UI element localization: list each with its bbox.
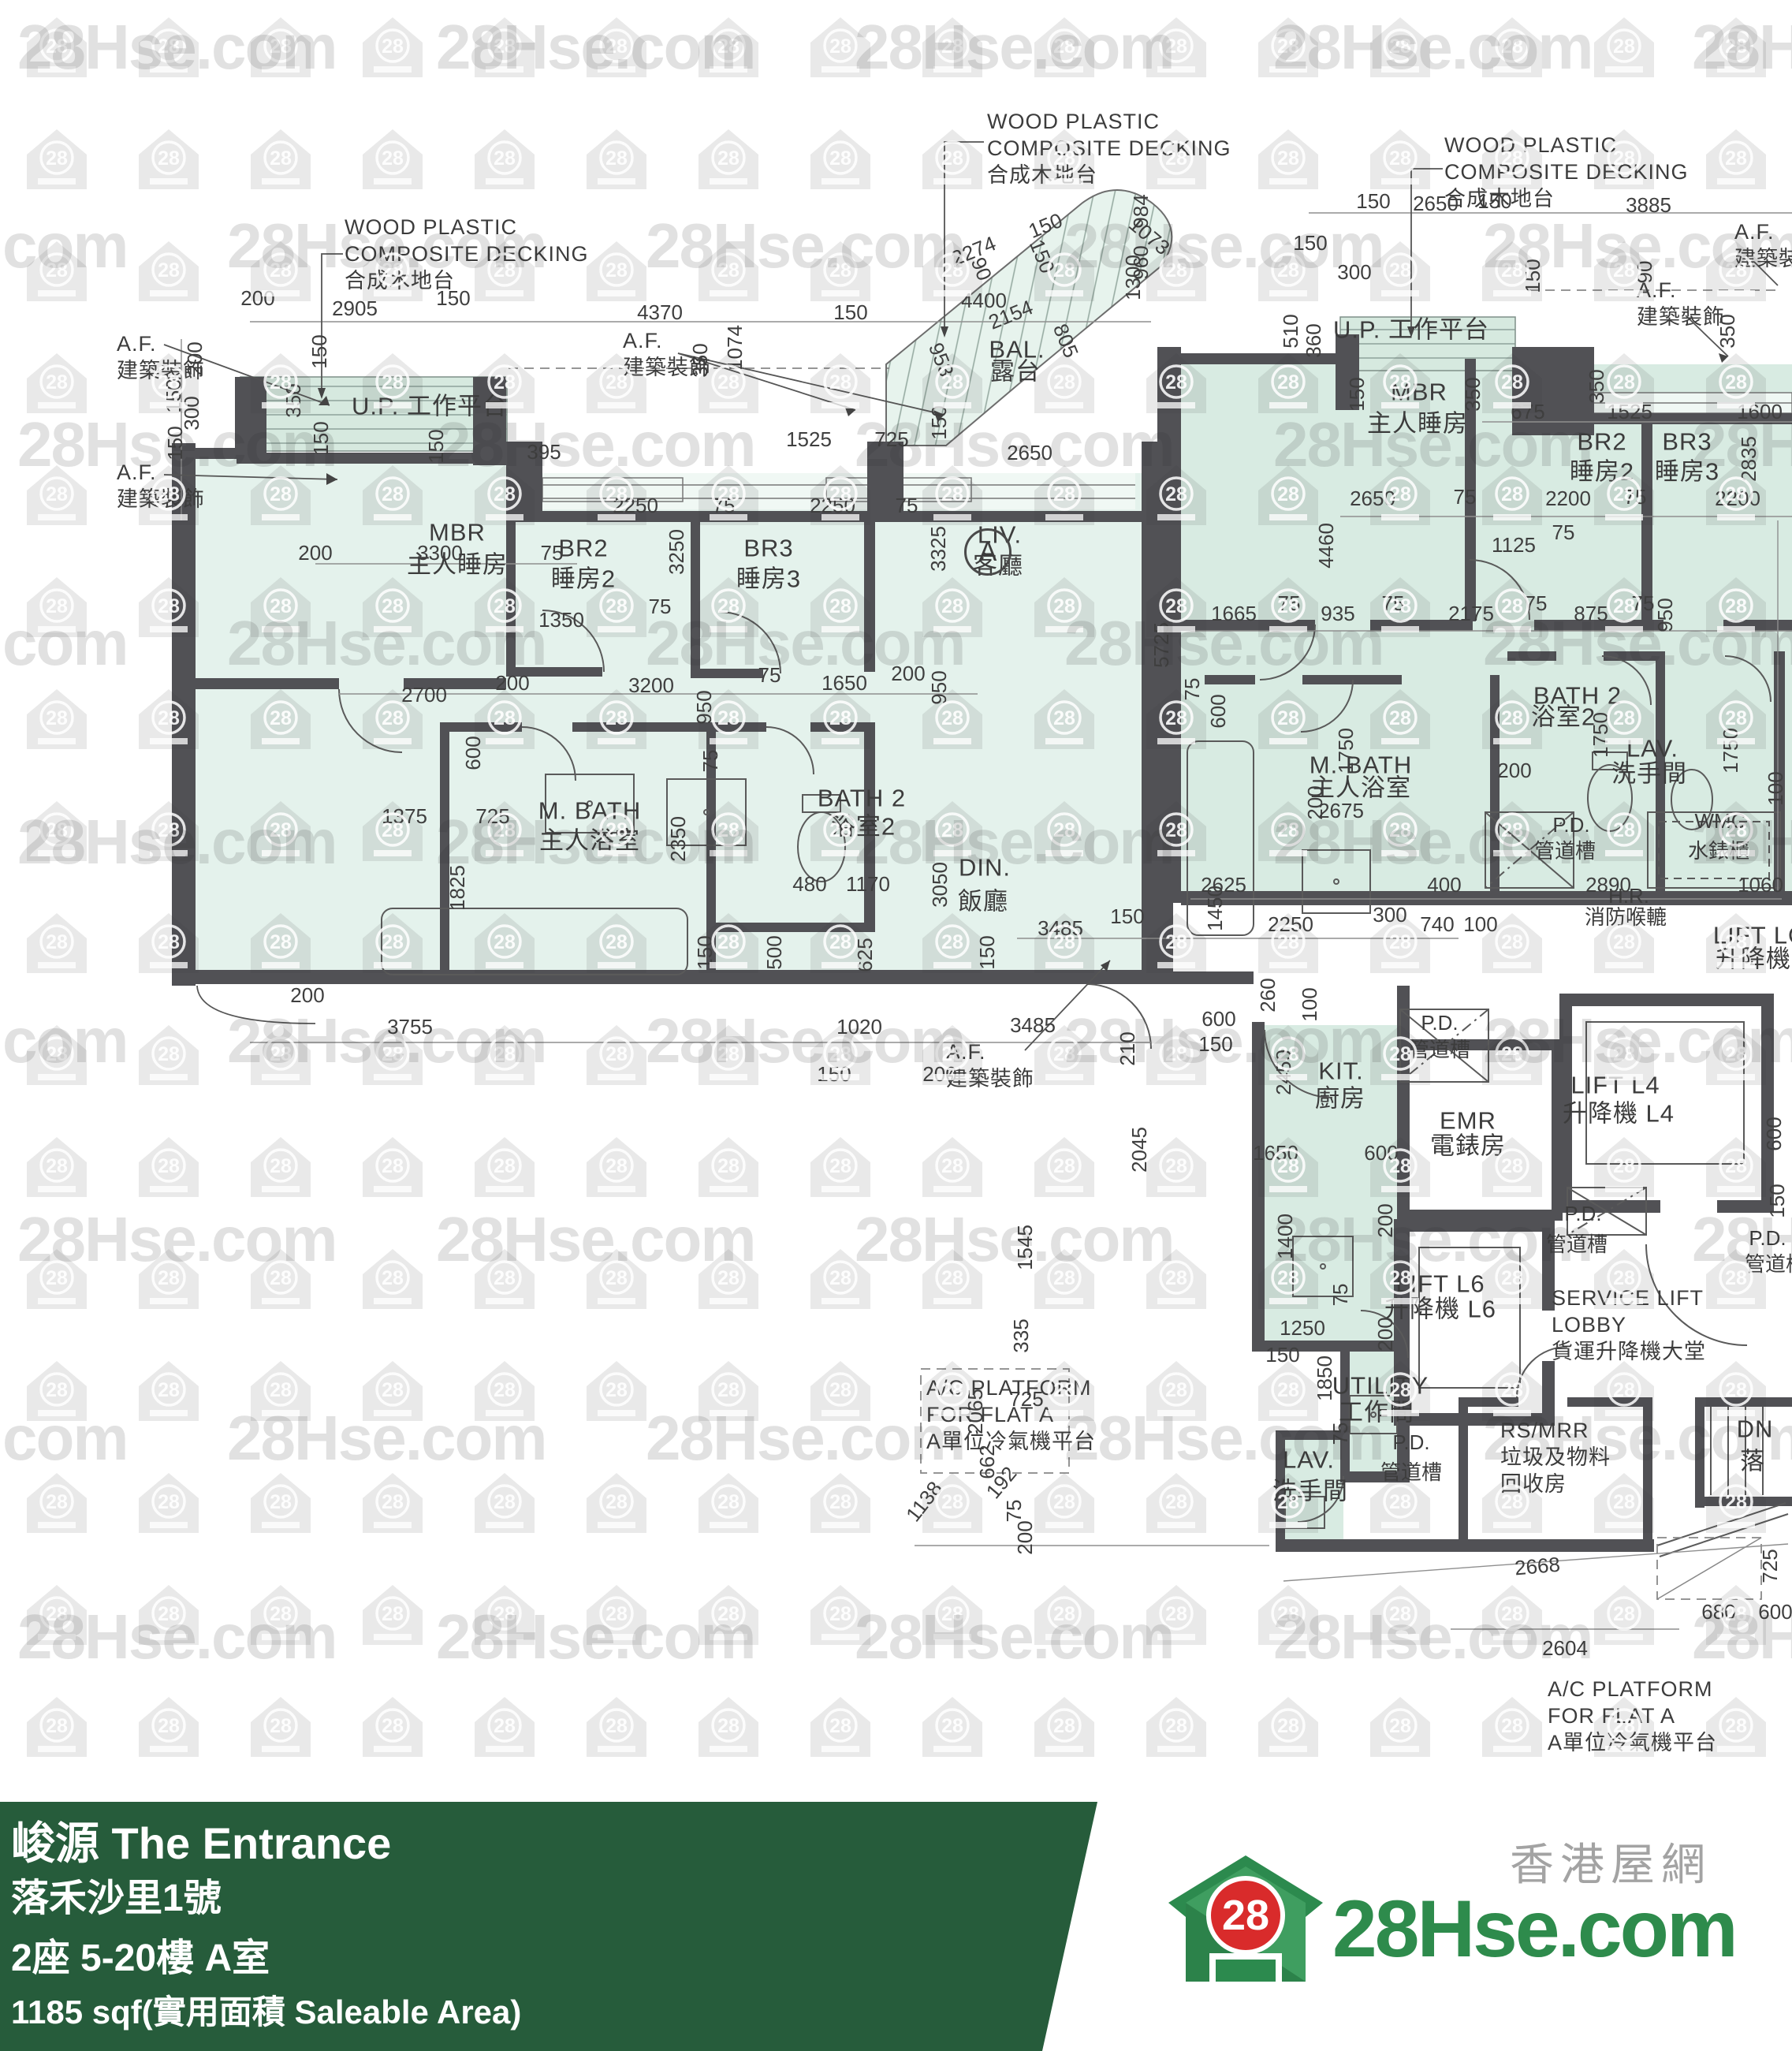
annotation-block: WOOD PLASTICCOMPOSITE DECKING合成木地台 [1444, 132, 1689, 212]
dim-label: 3250 [666, 529, 687, 575]
dim-label: 150 [695, 935, 715, 969]
annotation-block: SERVICE LIFTLOBBY貨運升降機大堂 [1552, 1285, 1706, 1365]
dim-label: 3200 [628, 675, 674, 695]
dim-label: 360 [1303, 323, 1324, 357]
dim-label: 150 [1522, 259, 1543, 293]
dim-label: 625 [855, 938, 875, 971]
annotation-block: A.F.建築裝飾 [117, 460, 205, 513]
room-label: 管道槽 [1409, 1039, 1470, 1060]
dim-label: 1375 [382, 806, 427, 826]
room-label: 飯廳 [958, 889, 1008, 914]
room-label: 浴室2 [831, 815, 896, 839]
dim-label: 300 [181, 396, 202, 430]
dim-label: 400 [1427, 874, 1461, 895]
dim-label: 935 [1321, 603, 1354, 624]
dim-label: 200 [1497, 760, 1531, 781]
room-label: 主人浴室 [539, 829, 640, 853]
brand-chinese: 香港屋網 [1510, 1843, 1712, 1887]
dim-label: 75 [1382, 593, 1405, 613]
dim-label: 4460 [1316, 523, 1336, 569]
dim-label: 300 [1373, 904, 1406, 925]
annotation-block: RS/MRR垃圾及物料回收房 [1500, 1418, 1611, 1497]
dim-label: 3050 [930, 862, 950, 908]
dim-label: 75 [896, 495, 918, 516]
dim-label: 2200 [1545, 488, 1591, 509]
plan-labels: U.P. 工作平台MBR主人睡房BR2睡房2BR3睡房3LIV.客廳DIN.飯廳… [0, 0, 1792, 1833]
room-label: P.D. [1421, 1012, 1458, 1033]
room-label: 升降機 L4 [1563, 1102, 1675, 1126]
dim-label: 200 [1015, 1520, 1035, 1554]
dim-label: 725 [874, 429, 908, 449]
dim-label: 2700 [401, 684, 447, 705]
dim-label: 1825 [447, 865, 468, 911]
room-label: MBR [1391, 380, 1447, 405]
dim-label: 200 [1375, 1317, 1395, 1351]
dim-label: 200 [891, 663, 925, 684]
room-label: 電錶房 [1430, 1134, 1506, 1158]
footer: 峻源 The Entrance 落禾沙里1號 2座 5-20樓 A室 1185 … [0, 1802, 1792, 2051]
room-label: P.D. [1552, 815, 1589, 835]
room-label: BR2 [558, 536, 608, 561]
dim-label: 210 [1117, 1031, 1138, 1065]
dim-label: 350 [1462, 377, 1483, 411]
dim-label: 1665 [1211, 603, 1257, 624]
dim-label: 150 [1265, 1344, 1299, 1365]
room-label: BATH 2 [818, 786, 906, 811]
dim-label: 740 [1420, 914, 1454, 934]
room-label: LIFT L6 [1395, 1272, 1485, 1296]
dim-label: 75 [541, 543, 564, 563]
room-label: 睡房3 [1655, 460, 1719, 484]
dim-label: 3485 [1010, 1015, 1056, 1035]
dim-label: 75 [1182, 678, 1202, 701]
dim-label: 75 [1632, 593, 1655, 613]
dim-label: 510 [1280, 314, 1301, 348]
room-label: M. BATH [538, 799, 641, 823]
dim-label: 75 [700, 750, 721, 773]
dim-label: 1525 [1607, 401, 1652, 422]
dim-label: 300 [1337, 262, 1371, 282]
dim-label: 680 [1701, 1602, 1735, 1622]
room-label: BR3 [1662, 430, 1712, 454]
room-label: 洗手間 [1611, 762, 1687, 786]
estate-address: 落禾沙里1號 [11, 1866, 222, 1922]
dim-label: 75 [1525, 593, 1548, 613]
dim-label: 1750 [1720, 728, 1741, 774]
estate-unit: 2座 5-20樓 A室 [11, 1926, 270, 1982]
dim-label: 75 [649, 596, 672, 617]
dim-label: 150 [1293, 233, 1327, 253]
annotation-block: WOOD PLASTICCOMPOSITE DECKING合成木地台 [345, 214, 589, 294]
dim-label: 2250 [1268, 914, 1313, 934]
dim-label: 1850 [1314, 1356, 1335, 1401]
room-label: 主人睡房 [1367, 412, 1468, 436]
annotation-block: A.F.建築裝飾 [623, 328, 711, 382]
dim-label: 200 [298, 543, 332, 563]
dim-label: 675 [1511, 401, 1544, 422]
dim-label: 75 [713, 495, 736, 516]
dim-label: 75 [758, 665, 781, 685]
dim-label: 150 [165, 426, 185, 460]
room-label: U.P. 工作平台 [1333, 318, 1489, 342]
dim-label: 200 [495, 673, 529, 693]
dim-label: 150 [1356, 191, 1390, 211]
dim-label: 1170 [846, 874, 890, 894]
dim-label: 2668 [1514, 1554, 1561, 1579]
dim-label: 3300 [417, 543, 463, 563]
dim-label: 75 [1454, 487, 1477, 507]
dim-label: 1450 [1205, 886, 1225, 931]
dim-label: 3485 [1038, 918, 1083, 938]
dim-label: 100 [1463, 914, 1497, 934]
dim-label: 953 [926, 340, 957, 379]
dim-label: 200 [290, 985, 324, 1005]
dim-label: 1545 [1015, 1225, 1035, 1270]
dim-label: 75 [1624, 487, 1647, 507]
room-label: 睡房2 [1570, 460, 1634, 484]
dim-label: 335 [1011, 1318, 1031, 1352]
dim-label: 600 [1208, 694, 1228, 728]
dim-label: 150 [1026, 237, 1058, 276]
dim-label: 1074 [725, 325, 745, 371]
room-label: 洗手間 [1272, 1479, 1348, 1504]
dim-label: 1750 [1336, 728, 1356, 774]
dim-label: 600 [1364, 1143, 1398, 1163]
dim-label: 100 [1299, 987, 1320, 1021]
room-label: 管道槽 [1546, 1234, 1608, 1255]
room-label: LIFT L4 [1570, 1073, 1660, 1098]
dim-label: 75 [1278, 593, 1301, 613]
room-label: 升降機大 [1716, 947, 1792, 971]
footer-green-band: 峻源 The Entrance 落禾沙里1號 2座 5-20樓 A室 1185 … [0, 1802, 1097, 2051]
dim-label: 600 [1201, 1009, 1235, 1029]
dim-label: 2650 [1007, 442, 1052, 463]
room-label: DN [1737, 1417, 1774, 1441]
dim-label: 600 [1764, 1117, 1784, 1150]
dim-label: 3325 [928, 526, 948, 572]
dim-label: 1300 [1123, 255, 1143, 300]
annotation-block: A/C PLATFORMFOR FLAT AA單位冷氣機平台 [926, 1375, 1096, 1455]
dim-label: 480 [792, 874, 826, 894]
dim-label: 725 [1760, 1549, 1780, 1583]
dim-label: 150 [1110, 906, 1144, 927]
dim-label: 75 [1004, 1500, 1024, 1523]
dim-label: 1125 [1492, 535, 1536, 555]
annotation-block: A.F.建築裝飾 [1734, 219, 1792, 273]
room-label: P.D. [1392, 1432, 1429, 1452]
dim-label: 75 [1330, 1284, 1351, 1307]
dim-label: 1060 [1738, 874, 1783, 895]
dim-label: 875 [1574, 603, 1608, 624]
room-label: WMC [1695, 811, 1746, 831]
dim-label: 2175 [1448, 603, 1494, 624]
dim-label: 75 [1330, 1423, 1351, 1445]
dim-label: 3755 [387, 1016, 433, 1037]
dim-label: 350 [283, 383, 304, 417]
dim-label: 2604 [1542, 1638, 1588, 1658]
dim-label: 150 [311, 421, 331, 455]
dim-label: 2200 [1715, 488, 1760, 509]
dim-label: 2835 [1738, 436, 1759, 482]
dim-label: 2250 [613, 495, 658, 516]
room-label: 管道槽 [1380, 1462, 1442, 1482]
dim-label: 150 [833, 302, 867, 323]
room-label: 升降機 L6 [1384, 1297, 1496, 1322]
dim-label: 725 [475, 806, 509, 826]
dim-label: 1650 [821, 673, 867, 693]
room-label: 管道槽 [1745, 1254, 1792, 1274]
room-label: 消防喉轆 [1585, 907, 1667, 927]
dim-label: 805 [1050, 321, 1082, 360]
dim-label: 75 [1552, 522, 1575, 543]
floorplan-page: U.P. 工作平台MBR主人睡房BR2睡房2BR3睡房3LIV.客廳DIN.飯廳… [0, 0, 1792, 2051]
dim-label: 5725 [1151, 622, 1172, 668]
dim-label: 1525 [786, 429, 832, 449]
dim-label: 2250 [810, 495, 855, 516]
estate-title: 峻源 The Entrance [11, 1808, 391, 1872]
dim-label: 2675 [1318, 800, 1364, 821]
dim-label: 100 [1765, 771, 1786, 805]
room-label: 露台 [990, 360, 1041, 384]
room-label: 管道槽 [1534, 841, 1596, 861]
room-label: P.D. [1564, 1203, 1601, 1224]
dim-label: 1250 [1280, 1318, 1325, 1338]
dim-label: 1600 [1737, 401, 1783, 422]
dim-label: 984 [1131, 194, 1151, 228]
dim-label: 150 [1198, 1034, 1232, 1054]
room-label: 廚房 [1315, 1087, 1365, 1111]
room-label: 浴室2 [1531, 705, 1596, 729]
brand-house-icon: 28 [1165, 1854, 1327, 1988]
annotation-block: WOOD PLASTICCOMPOSITE DECKING合成木地台 [987, 109, 1231, 188]
dim-label: 1350 [538, 610, 584, 630]
dim-label: 4370 [637, 302, 683, 323]
room-label: BR2 [1577, 430, 1626, 454]
annotation-block: A/C PLATFORMFOR FLAT AA單位冷氣機平台 [1548, 1676, 1717, 1756]
annotation-block: A.F.建築裝飾 [1637, 278, 1725, 331]
dim-label: 1138 [903, 1478, 946, 1525]
dim-label: 200 [1375, 1203, 1395, 1237]
annotation-block: A.F.建築裝飾 [117, 331, 205, 385]
dim-label: 950 [1655, 598, 1675, 632]
room-label: 睡房2 [551, 567, 616, 591]
room-label: P.D. [1749, 1228, 1786, 1248]
room-label: 水錶櫃 [1688, 841, 1749, 861]
dim-label: 150 [1347, 377, 1367, 411]
brand-site: 28Hse.com [1332, 1889, 1736, 1969]
room-label: 落 [1740, 1449, 1765, 1474]
dim-label: 150 [309, 334, 330, 368]
dim-label: 950 [929, 670, 949, 704]
dim-label: 150 [977, 935, 997, 969]
annotation-block: A.F.建築裝飾 [946, 1039, 1034, 1093]
dim-label: 2650 [1350, 488, 1395, 509]
dim-label: 1650 [1253, 1143, 1298, 1163]
dim-label: 600 [1758, 1602, 1792, 1622]
room-label: KIT. [1318, 1059, 1363, 1083]
room-label: UTILITY [1332, 1374, 1429, 1398]
dim-label: 1750 [1590, 712, 1611, 758]
dim-label: 200 [240, 288, 274, 308]
dim-label: 1020 [836, 1016, 882, 1037]
dim-label: 2905 [332, 298, 378, 319]
room-label: 睡房3 [736, 567, 801, 591]
dim-label: 500 [764, 935, 784, 969]
dim-label: 2045 [1129, 1127, 1149, 1173]
room-label: LAV. [1283, 1448, 1335, 1472]
room-label: 工作間 [1339, 1400, 1414, 1425]
room-label: LAV. [1626, 736, 1678, 761]
dim-label: 350 [1586, 369, 1607, 403]
room-label: DIN. [959, 856, 1011, 880]
dim-label: 395 [527, 442, 561, 462]
dim-label: 150 [817, 1064, 851, 1084]
dim-label: 150 [929, 405, 949, 439]
room-label: U.P. 工作平台 [352, 394, 508, 419]
room-label: EMR [1440, 1109, 1496, 1133]
dim-label: 950 [694, 690, 714, 724]
dim-label: 150 [426, 429, 446, 463]
dim-label: 150 [1767, 1184, 1787, 1218]
dim-label: 600 [463, 736, 483, 770]
brand-badge-28: 28 [1222, 1892, 1269, 1939]
room-label: BR3 [743, 536, 793, 561]
dim-label: 2350 [668, 816, 688, 862]
dim-label: 260 [1257, 978, 1278, 1012]
dim-label: 1400 [1275, 1214, 1295, 1259]
room-label: LIFT LO [1713, 923, 1792, 948]
dim-label: 2450 [1273, 1050, 1294, 1095]
flat-circle-label: A [964, 528, 1011, 576]
dim-label: 2890 [1585, 874, 1631, 895]
estate-area: 1185 sqf(實用面積 Saleable Area) [11, 1986, 521, 2034]
